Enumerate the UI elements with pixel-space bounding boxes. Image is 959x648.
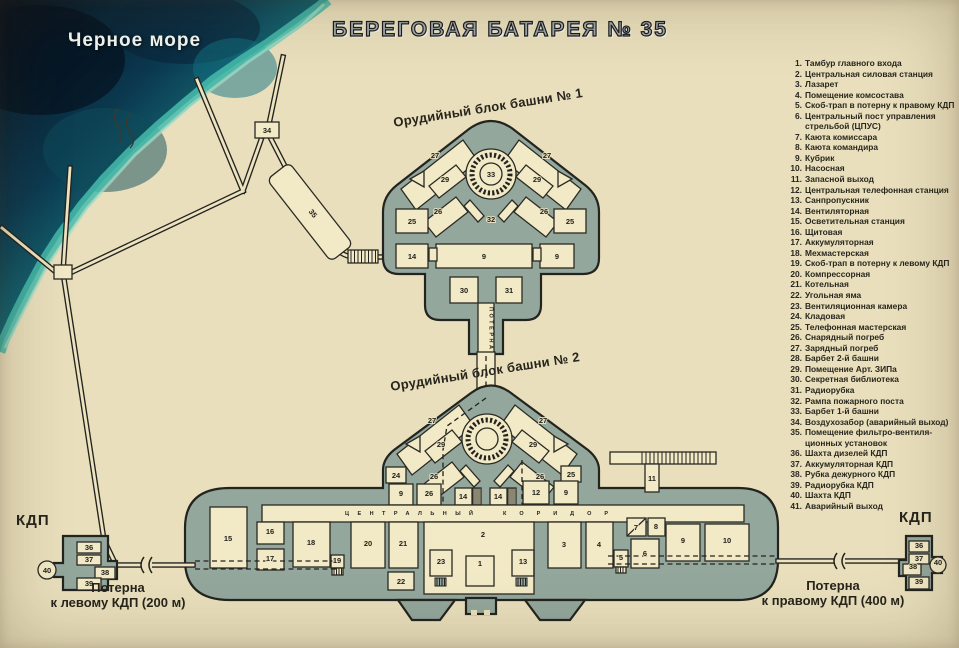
- legend-item-number: 37.: [786, 459, 802, 470]
- legend-item-text: Центральная телефонная станция: [805, 185, 949, 195]
- legend-item: 30.Секретная библиотека: [786, 374, 958, 385]
- legend-item-number: 12.: [786, 185, 802, 196]
- legend-item: 6.Центральный пост управления стрельбой …: [786, 111, 958, 132]
- legend-item: 16.Щитовая: [786, 227, 958, 238]
- room-number-29: 29: [533, 175, 541, 184]
- legend-item-text: Радиорубка: [805, 385, 854, 395]
- legend-item-text: Помещение Арт. ЗИПа: [805, 364, 897, 374]
- room-number-25: 25: [408, 217, 416, 226]
- room-number-10: 10: [723, 536, 731, 545]
- legend-item-number: 30.: [786, 374, 802, 385]
- legend-item-text: Кубрик: [805, 153, 834, 163]
- legend-item-text: Снарядный погреб: [805, 332, 884, 342]
- legend-item-text: Вентиляторная: [805, 206, 869, 216]
- room-number-21: 21: [399, 539, 407, 548]
- room-number-23: 23: [437, 557, 445, 566]
- legend-item-number: 19.: [786, 258, 802, 269]
- legend-item-number: 4.: [786, 90, 802, 101]
- legend-item-text: Скоб-трап в потерну к правому КДП: [805, 100, 954, 110]
- room-number-34: 34: [263, 126, 272, 135]
- legend-item-text: Барбет 2-й башни: [805, 353, 879, 363]
- legend-item-number: 2.: [786, 69, 802, 80]
- legend-item-text: Барбет 1-й башни: [805, 406, 879, 416]
- barbette-2-inner: [476, 428, 498, 450]
- legend-item-text: Санпропускник: [805, 195, 869, 205]
- room-number-2: 2: [481, 530, 485, 539]
- room-number-12: 12: [532, 488, 540, 497]
- legend-item-number: 3.: [786, 79, 802, 90]
- legend-item: 7.Каюта комиссара: [786, 132, 958, 143]
- room-number-27: 27: [543, 151, 551, 160]
- legend-item: 32.Рампа пожарного поста: [786, 396, 958, 407]
- room-number-9: 9: [564, 488, 568, 497]
- legend: 1.Тамбур главного входа2.Центральная сил…: [786, 58, 958, 512]
- room-number-26: 26: [536, 472, 544, 481]
- left-potern: [114, 555, 193, 575]
- legend-item: 28.Барбет 2-й башни: [786, 353, 958, 364]
- room-number-20: 20: [364, 539, 372, 548]
- legend-item-text: Насосная: [805, 163, 845, 173]
- legend-item-text: Тамбур главного входа: [805, 58, 902, 68]
- legend-item-number: 18.: [786, 248, 802, 259]
- room-number-9: 9: [482, 252, 486, 261]
- legend-item-number: 22.: [786, 290, 802, 301]
- legend-item: 20.Компрессорная: [786, 269, 958, 280]
- legend-item: 27.Зарядный погреб: [786, 343, 958, 354]
- legend-item-text: Лазарет: [805, 79, 838, 89]
- legend-item-text: Радиорубка КДП: [805, 480, 874, 490]
- legend-item: 34.Воздухозабор (аварийный выход): [786, 417, 958, 428]
- legend-item-number: 24.: [786, 311, 802, 322]
- legend-item: 31.Радиорубка: [786, 385, 958, 396]
- room-number-14: 14: [408, 252, 417, 261]
- connector-cell: [429, 248, 437, 261]
- legend-item: 12.Центральная телефонная станция: [786, 185, 958, 196]
- room-number-38: 38: [101, 568, 109, 577]
- room-number-3: 3: [562, 540, 566, 549]
- legend-item-text: Вентиляционная камера: [805, 301, 907, 311]
- potern-left-label: Потерна к левому КДП (200 м): [38, 580, 198, 610]
- room-number-24: 24: [392, 471, 401, 480]
- main-block: ЦЕНТРАЛЬНЫЙ КОРИДОР: [185, 386, 778, 621]
- legend-item-number: 16.: [786, 227, 802, 238]
- potern-right-line2: к правому КДП (400 м): [753, 593, 913, 608]
- legend-item-text: Мехмастерская: [805, 248, 869, 258]
- legend-item: 3.Лазарет: [786, 79, 958, 90]
- room-number-40: 40: [43, 566, 51, 575]
- legend-item: 13.Санпропускник: [786, 195, 958, 206]
- legend-item-text: Зарядный погреб: [805, 343, 878, 353]
- legend-item-number: 5.: [786, 100, 802, 111]
- legend-item-number: 14.: [786, 206, 802, 217]
- room-number-5: 5: [619, 553, 623, 562]
- kdp-left-label: КДП: [16, 512, 50, 529]
- legend-item-number: 40.: [786, 490, 802, 501]
- legend-item-number: 1.: [786, 58, 802, 69]
- room-number-36: 36: [85, 543, 93, 552]
- room-number-9: 9: [399, 489, 403, 498]
- turret-block-1: [383, 121, 599, 354]
- room-number-15: 15: [224, 534, 232, 543]
- legend-item: 22.Угольная яма: [786, 290, 958, 301]
- legend-item: 11.Запасной выход: [786, 174, 958, 185]
- legend-item-text: Воздухозабор (аварийный выход): [805, 417, 948, 427]
- legend-item-number: 29.: [786, 364, 802, 375]
- room-number-32: 32: [487, 215, 495, 224]
- legend-item: 35.Помещение фильтро-вентиля- ционных ус…: [786, 427, 958, 448]
- room-number-39: 39: [915, 577, 923, 586]
- legend-item-number: 7.: [786, 132, 802, 143]
- room-number-17: 17: [266, 554, 274, 563]
- room-number-37: 37: [85, 555, 93, 564]
- legend-item-number: 33.: [786, 406, 802, 417]
- legend-item-text: Компрессорная: [805, 269, 870, 279]
- kdp-right-label: КДП: [899, 509, 933, 526]
- legend-item: 25.Телефонная мастерская: [786, 322, 958, 333]
- legend-item-text: Телефонная мастерская: [805, 322, 906, 332]
- legend-item: 9.Кубрик: [786, 153, 958, 164]
- legend-item-number: 28.: [786, 353, 802, 364]
- potern-right-line1: Потерна: [753, 578, 913, 593]
- room-number-29: 29: [437, 440, 445, 449]
- legend-item: 2.Центральная силовая станция: [786, 69, 958, 80]
- legend-item-number: 23.: [786, 301, 802, 312]
- room-number-30: 30: [460, 286, 468, 295]
- legend-item: 10.Насосная: [786, 163, 958, 174]
- page-title: БЕРЕГОВАЯ БАТАРЕЯ № 35: [300, 18, 700, 42]
- legend-item-number: 8.: [786, 142, 802, 153]
- room-number-36: 36: [915, 541, 923, 550]
- legend-item: 29.Помещение Арт. ЗИПа: [786, 364, 958, 375]
- potern-left-line2: к левому КДП (200 м): [38, 595, 198, 610]
- room-number-26: 26: [434, 207, 442, 216]
- room-number-18: 18: [307, 538, 315, 547]
- legend-item-number: 35.: [786, 427, 802, 438]
- legend-item-number: 25.: [786, 322, 802, 333]
- legend-item-number: 20.: [786, 269, 802, 280]
- legend-item-number: 11.: [786, 174, 802, 185]
- potern-right-label: Потерна к правому КДП (400 м): [753, 578, 913, 608]
- legend-item-number: 41.: [786, 501, 802, 512]
- legend-item-text: Угольная яма: [805, 290, 861, 300]
- room-number-14: 14: [459, 492, 468, 501]
- legend-item: 38.Рубка дежурного КДП: [786, 469, 958, 480]
- legend-item-number: 6.: [786, 111, 802, 122]
- connector-cell: [533, 248, 541, 261]
- bottom-wing-right: [525, 600, 585, 620]
- legend-item-number: 10.: [786, 163, 802, 174]
- room-number-38: 38: [909, 562, 917, 571]
- legend-item: 36.Шахта дизелей КДП: [786, 448, 958, 459]
- right-potern: [778, 551, 905, 571]
- legend-item-number: 36.: [786, 448, 802, 459]
- room-number-27: 27: [428, 416, 436, 425]
- room-number-1: 1: [478, 559, 482, 568]
- legend-item-text: Каюта комиссара: [805, 132, 877, 142]
- room-number-11: 11: [648, 474, 656, 483]
- legend-item: 21.Котельная: [786, 279, 958, 290]
- legend-item-number: 21.: [786, 279, 802, 290]
- legend-item-text: Рампа пожарного поста: [805, 396, 904, 406]
- legend-item: 15.Осветительная станция: [786, 216, 958, 227]
- legend-item: 18.Мехмастерская: [786, 248, 958, 259]
- legend-item: 19.Скоб-трап в потерну к левому КДП: [786, 258, 958, 269]
- legend-item-number: 31.: [786, 385, 802, 396]
- room-number-25: 25: [566, 217, 574, 226]
- trap-hatch-5: [616, 567, 626, 573]
- room-number-14: 14: [494, 492, 503, 501]
- legend-item: 26.Снарядный погреб: [786, 332, 958, 343]
- legend-item: 24.Кладовая: [786, 311, 958, 322]
- room-number-33: 33: [487, 170, 495, 179]
- room-number-7: 7: [634, 523, 638, 532]
- legend-item-text: Аккумуляторная КДП: [805, 459, 893, 469]
- legend-item: 5.Скоб-трап в потерну к правому КДП: [786, 100, 958, 111]
- legend-item-text: Котельная: [805, 279, 849, 289]
- legend-item-number: 15.: [786, 216, 802, 227]
- trap-hatch-13: [516, 578, 527, 586]
- bottom-wing-left: [398, 600, 455, 620]
- potern-left-line1: Потерна: [38, 580, 198, 595]
- room-number-16: 16: [266, 527, 274, 536]
- room-number-22: 22: [397, 577, 405, 586]
- emergency-exit-junction: [54, 265, 72, 279]
- room-number-27: 27: [539, 416, 547, 425]
- legend-item: 8.Каюта командира: [786, 142, 958, 153]
- legend-item-text: Щитовая: [805, 227, 842, 237]
- room-number-25: 25: [567, 470, 575, 479]
- room-number-13: 13: [519, 557, 527, 566]
- legend-item-number: 27.: [786, 343, 802, 354]
- room-number-26: 26: [430, 472, 438, 481]
- main-entrance: [466, 598, 496, 615]
- legend-item-number: 39.: [786, 480, 802, 491]
- legend-item-text: Шахта КДП: [805, 490, 851, 500]
- legend-item-number: 34.: [786, 417, 802, 428]
- legend-item-text: Шахта дизелей КДП: [805, 448, 887, 458]
- legend-item: 1.Тамбур главного входа: [786, 58, 958, 69]
- room-number-8: 8: [654, 522, 658, 531]
- legend-item-text: Помещение фильтро-вентиля- ционных устан…: [805, 427, 932, 448]
- room-number-31: 31: [505, 286, 513, 295]
- legend-item-text: Центральный пост управления стрельбой (Ц…: [805, 111, 936, 132]
- legend-item-number: 13.: [786, 195, 802, 206]
- fire-ramp-32: [610, 452, 716, 492]
- trap-hatch-23: [435, 578, 446, 586]
- room-number-27: 27: [431, 151, 439, 160]
- legend-item: 14.Вентиляторная: [786, 206, 958, 217]
- legend-item-text: Осветительная станция: [805, 216, 905, 226]
- sea-label: Черное море: [68, 30, 201, 52]
- room-number-19: 19: [333, 556, 341, 565]
- legend-item-text: Помещение комсостава: [805, 90, 904, 100]
- legend-item: 37.Аккумуляторная КДП: [786, 459, 958, 470]
- battery-map: ПОТЕРНА: [0, 0, 959, 648]
- legend-item: 33.Барбет 1-й башни: [786, 406, 958, 417]
- room-number-26: 26: [540, 207, 548, 216]
- legend-item-text: Центральная силовая станция: [805, 69, 933, 79]
- legend-item-number: 32.: [786, 396, 802, 407]
- legend-item: 17.Аккумуляторная: [786, 237, 958, 248]
- legend-item: 40.Шахта КДП: [786, 490, 958, 501]
- room-number-6: 6: [643, 549, 647, 558]
- room-number-40: 40: [934, 558, 942, 567]
- room-number-9: 9: [681, 536, 685, 545]
- legend-item-text: Запасной выход: [805, 174, 874, 184]
- room-number-29: 29: [441, 175, 449, 184]
- legend-item-text: Секретная библиотека: [805, 374, 899, 384]
- legend-item-text: Каюта командира: [805, 142, 878, 152]
- legend-item-text: Скоб-трап в потерну к левому КДП: [805, 258, 949, 268]
- room-number-9: 9: [555, 252, 559, 261]
- legend-item-number: 26.: [786, 332, 802, 343]
- legend-item-text: Кладовая: [805, 311, 845, 321]
- legend-item: 4.Помещение комсостава: [786, 90, 958, 101]
- legend-item: 41.Аварийный выход: [786, 501, 958, 512]
- legend-item: 23.Вентиляционная камера: [786, 301, 958, 312]
- legend-item-number: 17.: [786, 237, 802, 248]
- room-number-26: 26: [425, 489, 433, 498]
- room-number-29: 29: [529, 440, 537, 449]
- legend-item-number: 38.: [786, 469, 802, 480]
- skob-trap-hatch: [348, 250, 378, 263]
- legend-item-text: Рубка дежурного КДП: [805, 469, 895, 479]
- legend-item-text: Аккумуляторная: [805, 237, 874, 247]
- legend-item-number: 9.: [786, 153, 802, 164]
- legend-item-text: Аварийный выход: [805, 501, 883, 511]
- legend-item: 39.Радиорубка КДП: [786, 480, 958, 491]
